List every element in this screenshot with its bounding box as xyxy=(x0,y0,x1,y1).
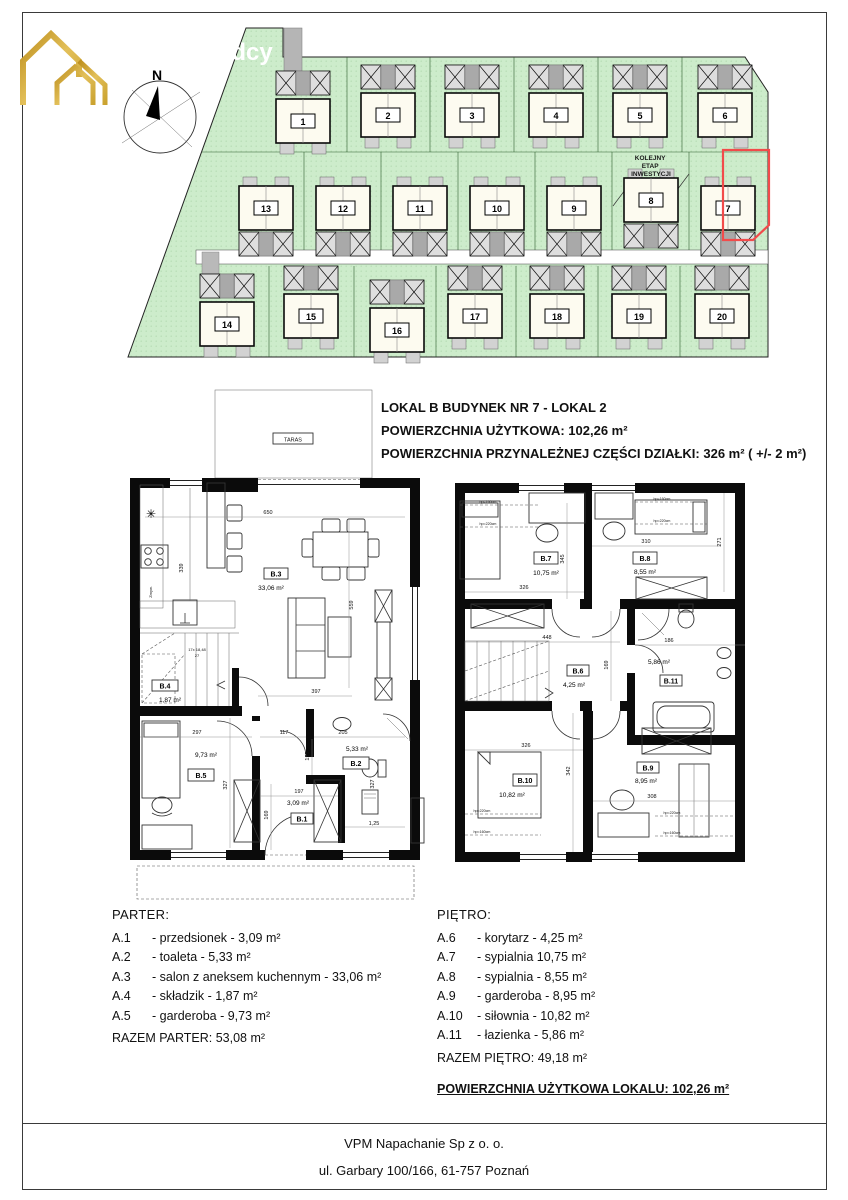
footprint-dashed xyxy=(137,866,414,899)
bar-counter xyxy=(207,483,242,572)
svg-text:4,25 m²: 4,25 m² xyxy=(563,682,586,689)
house-number: 19 xyxy=(634,312,644,322)
house-number: 7 xyxy=(725,204,730,214)
site-house-1: 1 xyxy=(276,71,330,154)
bathroom-b11: 5,86 m² B.11 xyxy=(638,604,731,732)
wardrobe-icons-right xyxy=(375,590,392,700)
list-item: A.10- siłownia - 10,82 m² xyxy=(437,1007,595,1027)
chair-icon xyxy=(603,522,625,540)
outer-walls xyxy=(455,483,745,862)
svg-text:hp=160cm: hp=160cm xyxy=(480,500,497,504)
svg-text:B.1: B.1 xyxy=(297,817,308,824)
svg-text:B.8: B.8 xyxy=(640,556,651,563)
room-area-b2: 5,33 m² xyxy=(346,746,369,753)
site-house-5: 5 xyxy=(613,65,667,148)
room-b10: B.10 10,82 m² hp=220cm hp=160cm xyxy=(465,752,541,835)
site-house-17: 17 xyxy=(448,266,502,349)
room-b5-furniture xyxy=(142,721,192,849)
parter-list-title: PARTER: xyxy=(112,905,381,925)
house-number: 20 xyxy=(717,312,727,322)
room-area-b1: 3,09 m² xyxy=(287,800,310,807)
pietro-list-title: PIĘTRO: xyxy=(437,905,595,925)
house-number: 9 xyxy=(571,204,576,214)
house-number: 15 xyxy=(306,312,316,322)
house-number: 11 xyxy=(415,204,425,214)
footer-divider xyxy=(22,1123,826,1124)
room-label-b3: B.3 xyxy=(264,568,288,579)
sink-icon xyxy=(717,668,731,679)
svg-text:hp=220cm: hp=220cm xyxy=(664,811,681,815)
svg-text:308: 308 xyxy=(647,794,656,800)
house-number: 10 xyxy=(492,204,502,214)
unit-plot-area: POWIERZCHNIA PRZYNALEŻNEJ CZĘŚCI DZIAŁKI… xyxy=(381,442,806,465)
svg-text:hp=220cm: hp=220cm xyxy=(480,522,497,526)
parter-list: PARTER: A.1- przedsionek - 3,09 m² A.2- … xyxy=(112,905,381,1049)
svg-text:310: 310 xyxy=(641,539,650,545)
list-item: A.7- sypialnia 10,75 m² xyxy=(437,948,595,968)
svg-text:B.2: B.2 xyxy=(351,761,362,768)
house-number: 1 xyxy=(300,117,305,127)
house-number: 6 xyxy=(722,111,727,121)
svg-text:B.4: B.4 xyxy=(160,684,171,691)
list-item: A.11- łazienka - 5,86 m² xyxy=(437,1026,595,1046)
svg-text:8,95 m²: 8,95 m² xyxy=(635,778,658,785)
svg-text:10,75 m²: 10,75 m² xyxy=(533,570,559,577)
svg-text:559: 559 xyxy=(349,600,355,609)
site-house-7: 7 xyxy=(701,177,755,256)
svg-text:27: 27 xyxy=(195,653,200,658)
unit-title: LOKAL B BUDYNEK NR 7 - LOKAL 2 xyxy=(381,396,806,419)
desk-icon xyxy=(529,493,585,523)
sink-icon xyxy=(173,600,197,625)
room-area-b3: 33,06 m² xyxy=(258,585,284,592)
house-number: 13 xyxy=(261,204,271,214)
svg-text:186: 186 xyxy=(664,638,673,644)
door-arc-b5 xyxy=(217,721,252,756)
dimensions-parter: 650 339 559 397 297 117 205 155 327 197 … xyxy=(140,510,405,850)
footer-company: VPM Napachanie Sp z o. o. xyxy=(22,1136,826,1151)
svg-text:B.6: B.6 xyxy=(573,669,584,676)
svg-text:hp=220cm: hp=220cm xyxy=(474,809,491,813)
house-number: 16 xyxy=(392,326,402,336)
room-area-b4: 1,87 m² xyxy=(159,697,182,704)
site-house-4: 4 xyxy=(529,65,583,148)
svg-text:327: 327 xyxy=(223,780,229,789)
room-label-b2: B.2 xyxy=(343,757,369,769)
house-number: 4 xyxy=(553,111,558,121)
sink-icon xyxy=(717,648,731,659)
floor-plan-pietro: hp=160cm hp=220cm B.7 10,75 m² hp=160cm … xyxy=(450,480,750,870)
desk-icon xyxy=(598,813,649,837)
room-label-b4: B.4 xyxy=(152,680,178,691)
pietro-list: PIĘTRO: A.6- korytarz - 4,25 m² A.7- syp… xyxy=(437,905,595,1068)
site-house-14: 14 xyxy=(200,274,254,357)
list-item: A.5- garderoba - 9,73 m² xyxy=(112,1007,381,1027)
house-number: 5 xyxy=(637,111,642,121)
site-plan: 1234561312111098714151617181920 KOLEJNY … xyxy=(0,0,848,380)
svg-text:B.10: B.10 xyxy=(518,778,533,785)
desk-icon xyxy=(595,493,633,519)
door-arc-b4 xyxy=(239,677,268,706)
wardrobe-icon-b1 xyxy=(314,780,341,842)
unit-usable-area: POWIERZCHNIA UŻYTKOWA: 102,26 m² xyxy=(381,419,806,442)
svg-text:17x 18,48: 17x 18,48 xyxy=(188,647,206,652)
svg-text:327: 327 xyxy=(370,779,376,788)
list-item: A.8- sypialnia - 8,55 m² xyxy=(437,968,595,988)
svg-text:hp=160cm: hp=160cm xyxy=(664,831,681,835)
svg-text:117: 117 xyxy=(280,730,289,736)
svg-text:B.11: B.11 xyxy=(664,679,679,686)
house-number: 18 xyxy=(552,312,562,322)
site-house-18: 18 xyxy=(530,266,584,349)
washer-icon xyxy=(362,790,378,814)
unit-info-block: LOKAL B BUDYNEK NR 7 - LOKAL 2 POWIERZCH… xyxy=(381,396,806,465)
chair-icon xyxy=(610,790,634,810)
site-house-9: 9 xyxy=(547,177,601,256)
floor-plan-parter: TARAS ✳ Zmyw. xyxy=(125,385,425,905)
site-house-16: 16 xyxy=(370,280,424,363)
svg-text:B.7: B.7 xyxy=(541,556,552,563)
svg-text:197: 197 xyxy=(294,789,303,795)
coffee-table-icon xyxy=(328,617,351,657)
svg-text:hp=160cm: hp=160cm xyxy=(654,497,671,501)
house-number: 17 xyxy=(470,312,480,322)
terrace-label: TARAS xyxy=(273,433,313,444)
fridge-icon: ✳ xyxy=(146,507,156,521)
sink-icon xyxy=(333,718,351,731)
list-item: A.6- korytarz - 4,25 m² xyxy=(437,929,595,949)
kitchen-area: ✳ Zmyw. xyxy=(140,485,235,628)
house-number: 8 xyxy=(648,196,653,206)
dining-table xyxy=(302,519,379,580)
svg-text:205: 205 xyxy=(338,730,347,736)
dishwasher-label: Zmyw. xyxy=(148,586,153,598)
chair-icon xyxy=(536,524,558,542)
svg-text:TARAS: TARAS xyxy=(284,438,302,444)
site-house-15: 15 xyxy=(284,266,338,349)
site-house-11: 11 xyxy=(393,177,447,256)
room-b7: hp=160cm hp=220cm B.7 10,75 m² xyxy=(460,493,585,579)
svg-text:650: 650 xyxy=(263,510,272,516)
site-house-3: 3 xyxy=(445,65,499,148)
total-usable-area: POWIERZCHNIA UŻYTKOWA LOKALU: 102,26 m² xyxy=(437,1082,729,1096)
list-item: A.2- toaleta - 5,33 m² xyxy=(112,948,381,968)
site-house-10: 10 xyxy=(470,177,524,256)
pietro-total: RAZEM PIĘTRO: 49,18 m² xyxy=(437,1049,595,1069)
svg-text:1,25: 1,25 xyxy=(369,821,380,827)
terrace-outline xyxy=(215,390,372,478)
list-item: A.9- garderoba - 8,95 m² xyxy=(437,987,595,1007)
svg-text:271: 271 xyxy=(717,537,723,546)
svg-text:10,82 m²: 10,82 m² xyxy=(499,792,525,799)
footer-address: ul. Garbary 100/166, 61-757 Poznań xyxy=(22,1163,826,1178)
svg-text:B.3: B.3 xyxy=(271,572,282,579)
svg-text:345: 345 xyxy=(560,554,566,563)
site-house-6: 6 xyxy=(698,65,752,148)
svg-text:169: 169 xyxy=(604,660,610,669)
site-house-8: 8 xyxy=(624,169,678,248)
svg-text:326: 326 xyxy=(519,585,528,591)
site-house-19: 19 xyxy=(612,266,666,349)
svg-text:B.9: B.9 xyxy=(643,766,654,773)
svg-text:B.5: B.5 xyxy=(196,773,207,780)
sofa-icon xyxy=(288,598,325,678)
site-house-12: 12 xyxy=(316,177,370,256)
stairs xyxy=(465,641,549,701)
list-item: A.1- przedsionek - 3,09 m² xyxy=(112,929,381,949)
svg-text:326: 326 xyxy=(521,743,530,749)
parter-total: RAZEM PARTER: 53,08 m² xyxy=(112,1029,381,1049)
svg-text:448: 448 xyxy=(542,635,551,641)
site-house-2: 2 xyxy=(361,65,415,148)
svg-text:155: 155 xyxy=(305,751,311,760)
house-number: 14 xyxy=(222,320,232,330)
house-number: 2 xyxy=(385,111,390,121)
room-label-b5: B.5 xyxy=(188,769,214,781)
room-area-b5: 9,73 m² xyxy=(195,752,218,759)
list-item: A.3- salon z aneksem kuchennym - 33,06 m… xyxy=(112,968,381,988)
svg-text:5,86 m²: 5,86 m² xyxy=(648,659,671,666)
stove-icon xyxy=(141,545,168,568)
stairs: 17x 18,48 27 xyxy=(140,633,239,706)
svg-text:342: 342 xyxy=(566,766,572,775)
svg-text:397: 397 xyxy=(311,689,320,695)
svg-text:8,55 m²: 8,55 m² xyxy=(634,569,657,576)
corridor-b6: B.6 4,25 m² xyxy=(465,604,589,701)
svg-text:297: 297 xyxy=(192,730,201,736)
svg-text:339: 339 xyxy=(179,563,185,572)
bed-icon xyxy=(460,501,500,579)
site-house-13: 13 xyxy=(239,177,293,256)
list-item: A.4- składzik - 1,87 m² xyxy=(112,987,381,1007)
bed-icon xyxy=(635,500,707,534)
outer-walls xyxy=(130,478,420,860)
room-label-b1: B.1 xyxy=(291,813,313,824)
site-house-20: 20 xyxy=(695,266,749,349)
svg-text:169: 169 xyxy=(264,810,270,819)
svg-text:hp=160cm: hp=160cm xyxy=(474,830,491,834)
house-number: 3 xyxy=(469,111,474,121)
house-number: 12 xyxy=(338,204,348,214)
svg-text:hp=220cm: hp=220cm xyxy=(654,519,671,523)
watermark-text: dcy xyxy=(231,39,273,66)
toilet-icon xyxy=(678,610,694,628)
